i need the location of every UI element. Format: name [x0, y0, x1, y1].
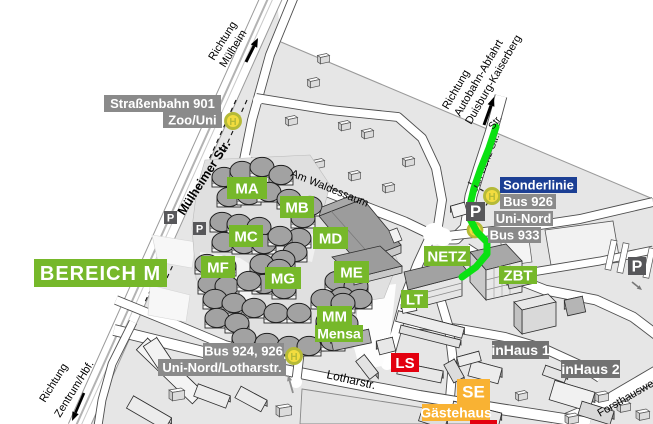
svg-text:MA: MA [235, 180, 258, 197]
svg-text:MG: MG [271, 270, 295, 287]
svg-text:LT: LT [406, 291, 423, 308]
svg-text:H: H [290, 352, 297, 363]
svg-text:P: P [196, 223, 203, 235]
svg-text:inHaus 2: inHaus 2 [561, 361, 620, 377]
svg-text:Straßenbahn 901: Straßenbahn 901 [110, 96, 215, 111]
svg-text:BEREICH M: BEREICH M [40, 263, 161, 285]
svg-text:MF: MF [207, 259, 229, 276]
svg-text:MM: MM [322, 308, 347, 325]
svg-text:ME: ME [340, 264, 363, 281]
svg-text:MC: MC [234, 228, 257, 245]
svg-text:Bus 933: Bus 933 [490, 228, 540, 243]
svg-text:H: H [229, 117, 236, 128]
svg-text:Sonderlinie: Sonderlinie [503, 178, 574, 193]
svg-text:P: P [470, 202, 481, 221]
svg-text:Gästehaus: Gästehaus [420, 405, 492, 421]
svg-text:MD: MD [319, 230, 342, 247]
svg-text:Mensa: Mensa [317, 326, 361, 342]
svg-text:inHaus 1: inHaus 1 [491, 342, 550, 358]
svg-text:P: P [167, 212, 174, 224]
svg-text:Uni-Nord: Uni-Nord [496, 211, 552, 226]
svg-text:Bus 924, 926: Bus 924, 926 [204, 344, 283, 359]
svg-text:Uni-Nord/Lotharstr.: Uni-Nord/Lotharstr. [162, 360, 281, 375]
svg-text:H: H [488, 192, 495, 203]
svg-text:P: P [632, 258, 643, 275]
svg-text:ZBT: ZBT [503, 267, 532, 284]
svg-text:Bus 926: Bus 926 [503, 194, 553, 209]
svg-text:LS: LS [395, 355, 414, 372]
svg-text:Zoo/Uni: Zoo/Uni [168, 113, 216, 128]
svg-text:MB: MB [285, 199, 308, 216]
svg-text:SE: SE [462, 383, 485, 402]
svg-text:NETZ: NETZ [427, 248, 466, 265]
